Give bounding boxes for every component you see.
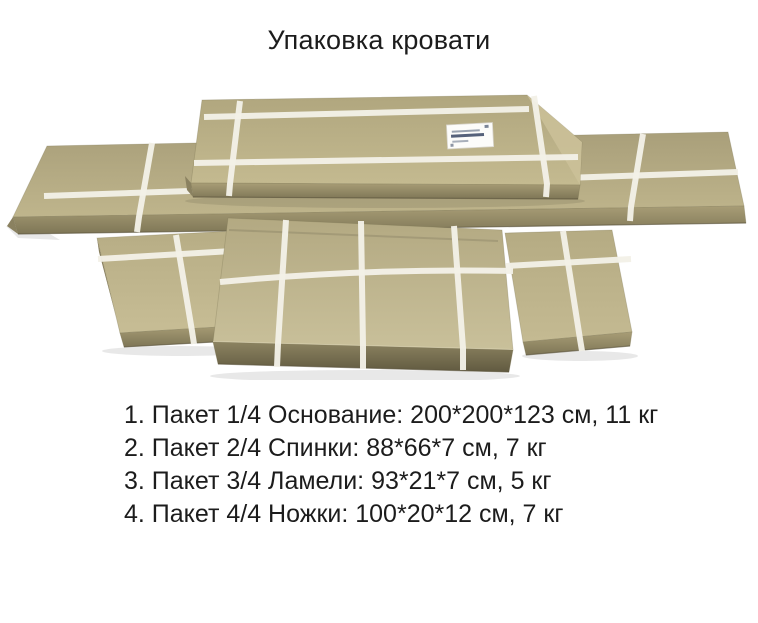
package-box-center bbox=[210, 218, 520, 380]
product-packaging-figure: Упаковка кровати bbox=[0, 0, 758, 623]
shipping-label-mark bbox=[450, 144, 453, 147]
package-list-item: 2. Пакет 2/4 Спинки: 88*66*7 см, 7 кг bbox=[124, 432, 658, 465]
package-box-top bbox=[185, 95, 582, 199]
page-title: Упаковка кровати bbox=[0, 0, 758, 56]
shipping-label bbox=[446, 123, 493, 149]
package-list: 1. Пакет 1/4 Основание: 200*200*123 см, … bbox=[124, 399, 658, 531]
package-box-right bbox=[505, 230, 638, 361]
strap bbox=[361, 221, 363, 369]
shipping-label-mark bbox=[485, 125, 489, 128]
packages-photo bbox=[0, 80, 758, 380]
package-list-item: 4. Пакет 4/4 Ножки: 100*20*12 см, 7 кг bbox=[124, 498, 658, 531]
box-front-face bbox=[191, 183, 580, 199]
package-list-item: 3. Пакет 3/4 Ламели: 93*21*7 см, 5 кг bbox=[124, 465, 658, 498]
package-list-item: 1. Пакет 1/4 Основание: 200*200*123 см, … bbox=[124, 399, 658, 432]
